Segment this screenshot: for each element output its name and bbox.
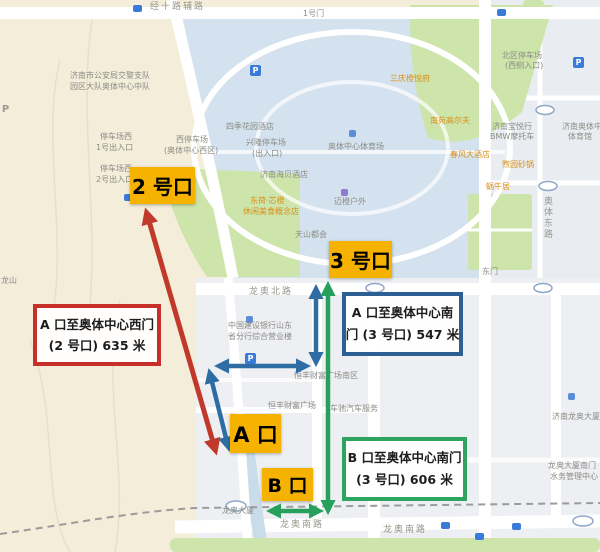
distance-note-line: 门 (3 号口) 547 米 bbox=[346, 328, 460, 342]
distance-note-line: (2 号口) 635 米 bbox=[49, 339, 146, 353]
distance-note-line: A 口至奥体中心西门 bbox=[40, 318, 154, 332]
exit-a-marker: A 口 bbox=[230, 414, 281, 453]
distance-note-line: B 口至奥体中心南门 bbox=[348, 451, 462, 465]
exit-2-marker: 2 号口 bbox=[130, 167, 195, 204]
distance-note-south-gate-a: A 口至奥体中心南 门 (3 号口) 547 米 bbox=[342, 292, 463, 356]
distance-note-south-gate-b: B 口至奥体中心南门 (3 号口) 606 米 bbox=[342, 437, 467, 501]
distance-note-west-gate: A 口至奥体中心西门 (2 号口) 635 米 bbox=[33, 304, 161, 366]
annotated-map-image: 经十路辅路 龙奥北路 龙奥南路 龙奥南路 奥体东路 1号门 济南市公安局交警支队… bbox=[0, 0, 600, 552]
exit-b-marker: B 口 bbox=[262, 468, 313, 501]
distance-note-line: A 口至奥体中心南 bbox=[352, 306, 454, 320]
exit-3-marker: 3 号口 bbox=[329, 241, 392, 278]
distance-note-line: (3 号口) 606 米 bbox=[356, 473, 453, 487]
